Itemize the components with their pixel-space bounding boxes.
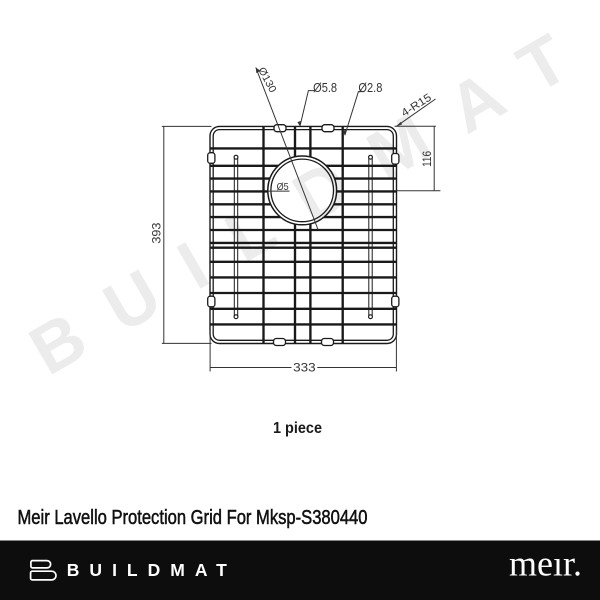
svg-text:1 piece: 1 piece: [273, 420, 322, 437]
svg-text:393: 393: [151, 223, 163, 244]
svg-text:Meir Lavello Protection Grid F: Meir Lavello Protection Grid For Mksp-S3…: [18, 506, 368, 529]
svg-text:Ø5.8: Ø5.8: [313, 80, 337, 95]
svg-text:333: 333: [293, 361, 316, 375]
svg-text:Ø2.8: Ø2.8: [358, 80, 382, 95]
svg-text:116: 116: [422, 151, 434, 167]
svg-text:meır.: meır.: [509, 544, 582, 584]
svg-text:BUILDMAT: BUILDMAT: [67, 560, 237, 580]
